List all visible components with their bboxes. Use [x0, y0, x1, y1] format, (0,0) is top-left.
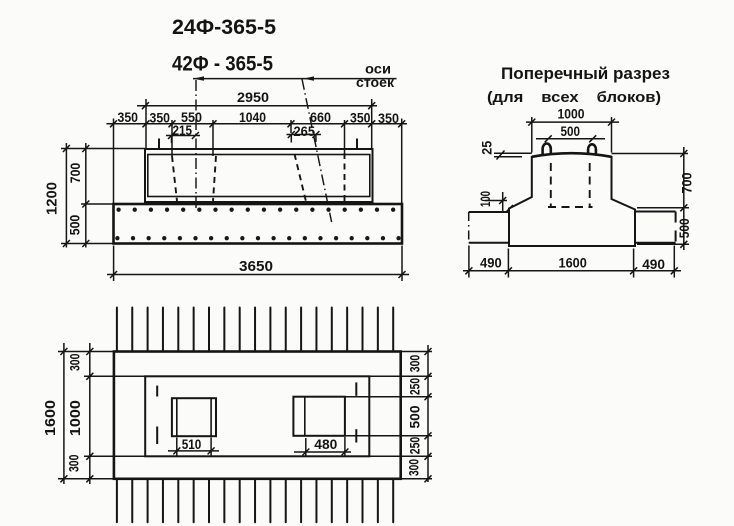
svg-text:25: 25: [479, 141, 495, 155]
svg-text:1000: 1000: [67, 400, 84, 436]
svg-text:500: 500: [561, 123, 581, 139]
svg-text:1200: 1200: [44, 182, 61, 215]
svg-text:1040: 1040: [239, 109, 266, 125]
svg-text:Поперечный разрез: Поперечный разрез: [501, 64, 670, 83]
svg-text:42Ф - 365-5: 42Ф - 365-5: [172, 53, 273, 76]
svg-text:250: 250: [407, 437, 423, 455]
svg-text:300: 300: [66, 454, 82, 472]
svg-text:1000: 1000: [558, 106, 585, 122]
svg-text:100: 100: [477, 191, 493, 207]
svg-text:250: 250: [407, 378, 423, 395]
svg-text:300: 300: [406, 459, 422, 476]
svg-text:2950: 2950: [237, 89, 269, 105]
svg-text:500: 500: [67, 215, 83, 236]
svg-text:1600: 1600: [559, 255, 587, 271]
svg-text:стоек: стоек: [356, 74, 395, 90]
svg-text:510: 510: [182, 436, 202, 452]
svg-text:350: 350: [150, 110, 171, 126]
svg-text:265: 265: [294, 123, 316, 139]
svg-text:480: 480: [314, 436, 337, 452]
svg-text:215: 215: [173, 122, 193, 138]
svg-text:490: 490: [480, 255, 502, 271]
svg-text:24Ф-365-5: 24Ф-365-5: [172, 16, 276, 39]
svg-text:350: 350: [350, 110, 371, 126]
svg-text:350: 350: [378, 110, 399, 126]
svg-text:3650: 3650: [239, 258, 273, 275]
svg-text:700: 700: [679, 172, 695, 193]
svg-text:500: 500: [407, 405, 423, 428]
svg-text:300: 300: [407, 355, 423, 373]
svg-text:500: 500: [676, 218, 692, 238]
svg-text:(для всех блоков): (для всех блоков): [487, 89, 661, 106]
svg-text:700: 700: [67, 163, 83, 184]
svg-text:300: 300: [66, 353, 82, 371]
svg-text:490: 490: [642, 256, 665, 272]
svg-text:350: 350: [118, 109, 139, 125]
svg-text:1600: 1600: [42, 400, 59, 436]
